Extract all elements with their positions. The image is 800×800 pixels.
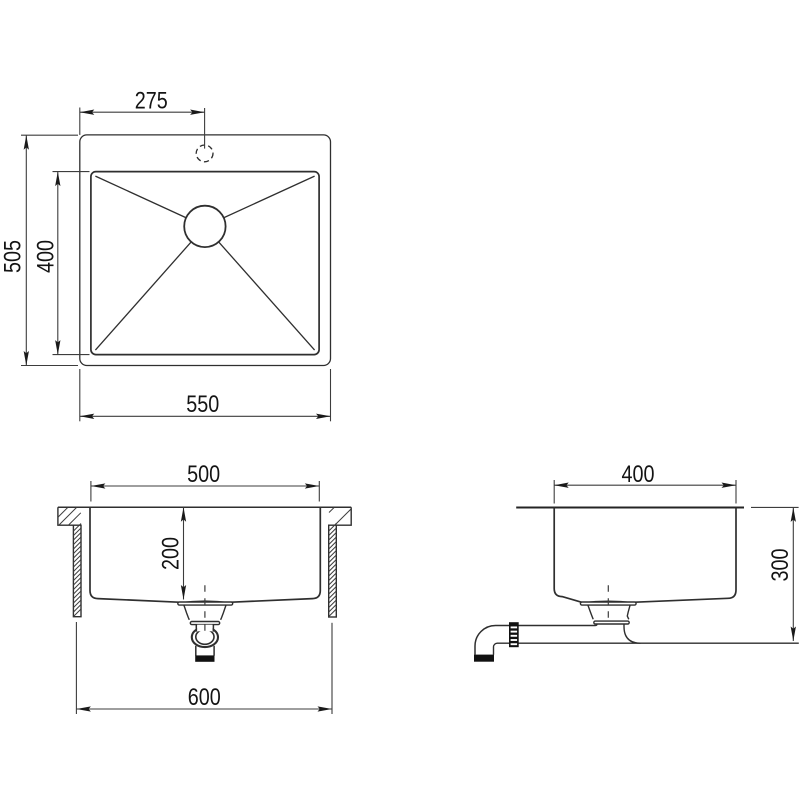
- svg-text:200: 200: [158, 537, 185, 570]
- svg-text:500: 500: [187, 461, 220, 488]
- svg-text:275: 275: [135, 87, 168, 114]
- svg-text:400: 400: [33, 240, 60, 273]
- svg-text:505: 505: [0, 240, 27, 273]
- svg-text:600: 600: [188, 684, 221, 711]
- svg-text:550: 550: [186, 391, 219, 418]
- svg-text:400: 400: [622, 461, 655, 488]
- svg-text:300: 300: [767, 549, 794, 582]
